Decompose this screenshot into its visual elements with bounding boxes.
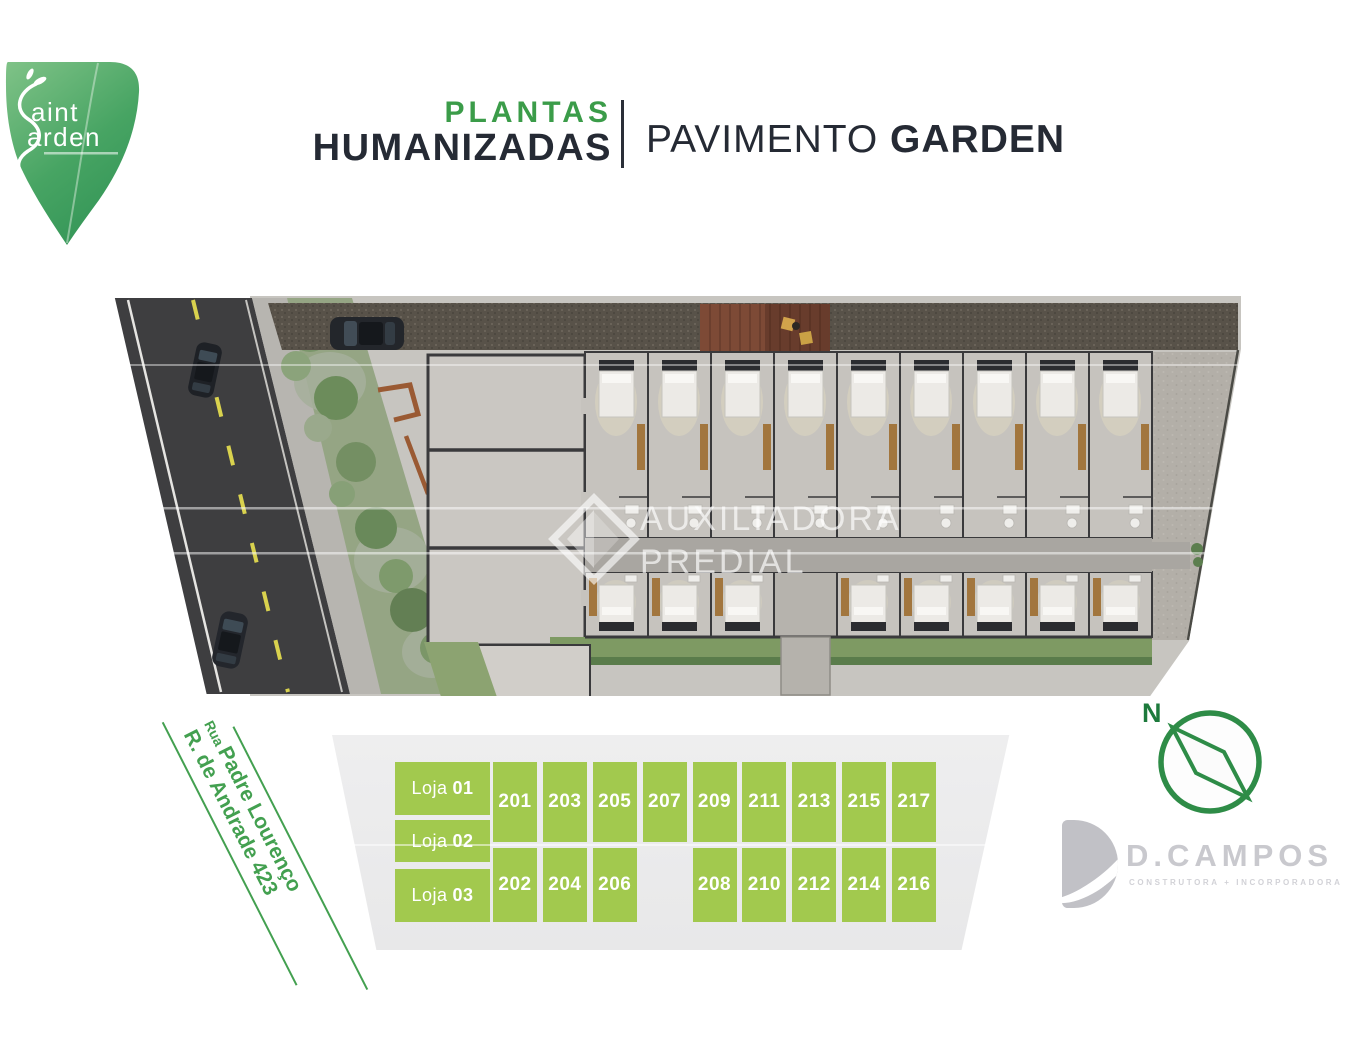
site-boundary (1188, 350, 1238, 640)
door-gap (581, 590, 589, 606)
plan-unit-211 (900, 352, 963, 538)
planter-wall (378, 385, 418, 420)
grass-patch (424, 642, 498, 700)
planter-wall (438, 598, 468, 654)
dcampos-tagline: CONSTRUTORA + INCORPORADORA (1129, 878, 1343, 887)
door-gap (581, 398, 589, 414)
street-line-1: Rua Padre Lourenço (199, 716, 360, 1003)
car-on-road (210, 610, 249, 671)
compass-needle (1172, 727, 1248, 798)
plan-unit-206 (711, 572, 774, 637)
gravel-strip (268, 303, 1238, 350)
title-pavimento-garden: PAVIMENTO GARDEN (646, 118, 1065, 162)
units-row-bottom (585, 572, 1152, 637)
corridor-extension (1152, 542, 1190, 569)
sidewalk-verge (252, 298, 382, 694)
landscaping (281, 298, 470, 694)
units-row-top (585, 352, 1152, 538)
plan-unit-216 (1089, 572, 1152, 637)
street-road (112, 298, 350, 694)
mask (0, 696, 1366, 718)
title-divider (621, 100, 624, 168)
logo-text-bottom: arden (27, 122, 101, 152)
plan-unit-212 (963, 572, 1026, 637)
plan-unit-208 (837, 572, 900, 637)
floorplan-poster: aint arden PLANTAS HUMANIZADAS PAVIMENTO… (0, 0, 1366, 1055)
title-humanizadas: HUMANIZADAS (285, 127, 612, 170)
plan-unit-207 (774, 352, 837, 538)
mask (0, 290, 208, 700)
plan-unit-213 (963, 352, 1026, 538)
wood-deck (700, 304, 830, 354)
compass-circle (1161, 713, 1259, 811)
car-parked (330, 317, 404, 350)
central-corridor (585, 538, 1152, 572)
plan-unit-210 (900, 572, 963, 637)
mask (1146, 290, 1366, 702)
door-gap (581, 492, 589, 508)
planter (1193, 557, 1203, 567)
terrace (1152, 352, 1238, 640)
plan-unit-209 (837, 352, 900, 538)
service-structure (478, 645, 590, 697)
entrance-walkway (781, 637, 830, 695)
car-on-road (187, 341, 224, 399)
lojas-block (428, 355, 585, 645)
plan-unit-205 (711, 352, 774, 538)
watermark-diamond-logo (553, 498, 635, 580)
road-center-dashes (193, 300, 288, 692)
watermark-text-2: PREDIAL (640, 543, 807, 582)
plan-unit-204 (648, 572, 711, 637)
plan-unit-217 (1089, 352, 1152, 538)
title-pavimento: PAVIMENTO (646, 118, 890, 161)
street-line-2: R. de Andrade 423 (179, 726, 340, 1013)
planter-wall (406, 436, 428, 494)
entrance-hall (774, 572, 837, 637)
plan-unit-214 (1026, 572, 1089, 637)
units-top-slab (585, 352, 1152, 538)
compass-north-label: N (1142, 698, 1162, 728)
dcampos-name: D.CAMPOS (1126, 838, 1333, 874)
garden-strip (550, 637, 1152, 665)
title-plantas: PLANTAS (285, 96, 612, 130)
watermark-text-1: AUXILIADORA (640, 500, 902, 539)
plan-unit-215 (1026, 352, 1089, 538)
units-bottom-slab (585, 572, 1152, 637)
planter (1191, 543, 1203, 555)
plan-unit-203 (648, 352, 711, 538)
title-garden: GARDEN (890, 118, 1065, 161)
legend-panel (330, 735, 1012, 950)
plan-unit-201 (585, 352, 648, 538)
saint-garden-logo: aint arden (0, 0, 170, 260)
logo-tagline-bar (44, 152, 118, 155)
plaza-base (250, 296, 1244, 696)
plan-unit-202 (585, 572, 648, 637)
dcampos-logo-mark (1062, 820, 1118, 908)
